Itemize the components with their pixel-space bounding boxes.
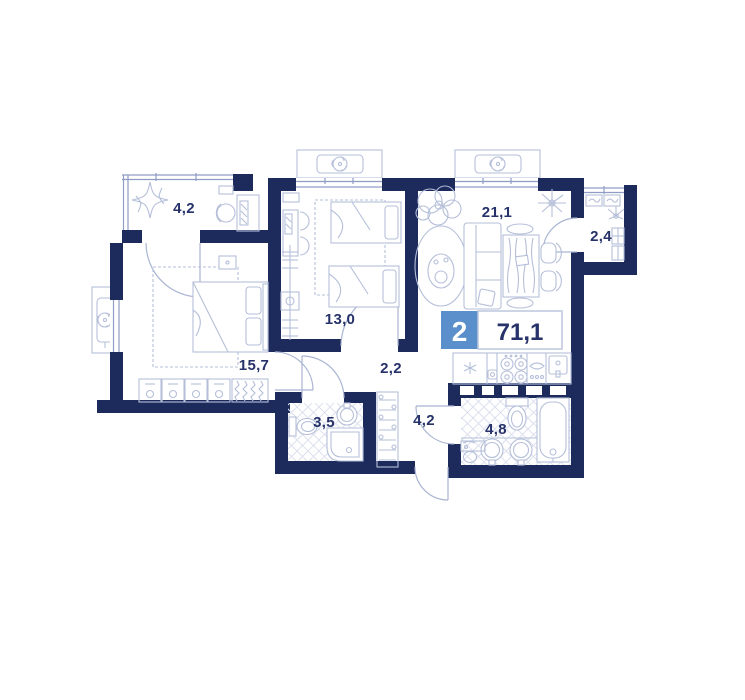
toilet-icon-main-bath — [506, 398, 528, 430]
bathtub-icon — [537, 398, 569, 462]
room-label-living-kitchen: 21,1 — [482, 204, 512, 221]
floor-plan-canvas: 4,2 13,0 21,1 2,4 15,7 2,2 3,5 4,2 4,8 2… — [0, 0, 745, 700]
room-label-bathroom-shower: 3,5 — [313, 414, 335, 431]
room-label-bathroom-main: 4,8 — [485, 421, 507, 438]
room-label-balcony-right: 2,4 — [590, 228, 612, 245]
room-label-balcony-top-left: 4,2 — [173, 200, 195, 217]
room-label-bedroom-master: 15,7 — [239, 357, 269, 374]
bed-icon-second-bottom — [329, 266, 399, 307]
bed-icon-second-top — [331, 202, 401, 243]
room-label-hall: 2,2 — [380, 360, 402, 377]
floor-plan: 4,2 13,0 21,1 2,4 15,7 2,2 3,5 4,2 4,8 2… — [0, 0, 745, 700]
total-area-label: 71,1 — [497, 319, 544, 346]
dining-table-icon — [503, 224, 539, 308]
shower-icon — [327, 428, 363, 461]
room-label-bedroom-second: 13,0 — [325, 311, 355, 328]
apartment-badge: 2 71,1 — [441, 311, 562, 349]
rooms-count-label: 2 — [452, 316, 468, 347]
sofa-icon — [464, 223, 501, 309]
room-label-corridor: 4,2 — [413, 412, 435, 429]
